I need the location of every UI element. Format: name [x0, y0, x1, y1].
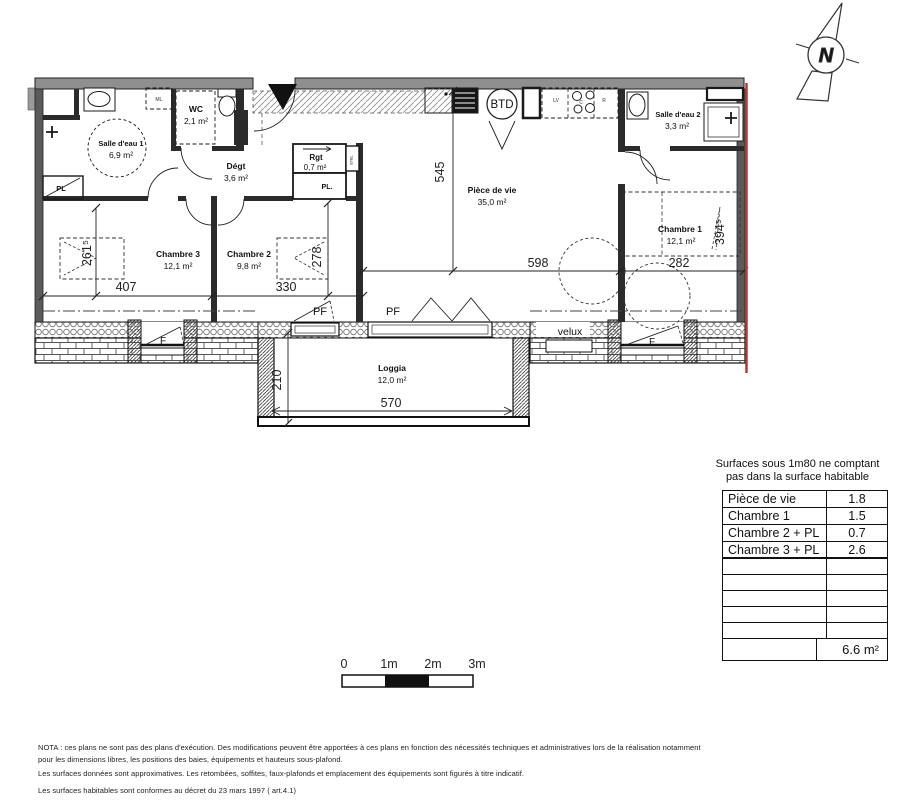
wall-pier — [184, 320, 197, 363]
btd-label: BTD — [491, 99, 514, 111]
ventilation-unit — [707, 88, 743, 100]
cooktop-label: C — [579, 100, 583, 106]
f-label-chambre3: F — [160, 336, 166, 347]
table-row-empty — [723, 591, 887, 607]
scale-bar: 0 1m 2m 3m — [341, 657, 486, 687]
nota-line2: pour les dimensions libres, les position… — [38, 755, 878, 764]
north-arrow-icon: N — [796, 3, 859, 101]
room-area-chambre2: 9,8 m² — [237, 261, 261, 271]
room-label-rgt: Rgt — [309, 153, 323, 162]
etel-label: ETEL — [350, 155, 354, 165]
dim-3945: 394⁵ — [713, 219, 727, 245]
room-label-chambre1: Chambre 1 — [658, 224, 702, 234]
surfaces-table-grid: Pièce de vie 1.8 Chambre 1 1.5 Chambre 2… — [722, 490, 888, 661]
room-area-wc: 2,1 m² — [184, 116, 208, 126]
table-cell-value: 0.7 — [827, 526, 887, 540]
wall-top-left-segment — [35, 78, 253, 89]
room-area-chambre1: 12,1 m² — [667, 236, 696, 246]
surfaces-table-title-line2: pas dans la surface habitable — [705, 471, 890, 484]
burner-icon — [586, 91, 594, 99]
velux-label: velux — [558, 326, 583, 338]
table-row: Chambre 1 1.5 — [723, 508, 887, 525]
table-cell-value: 2.6 — [827, 543, 887, 557]
dim-210: 210 — [270, 370, 284, 391]
floor-plan-sheet: N 0 1m 2m 3m Salle d'eau 1 6,9 m² WC 2,1… — [0, 0, 897, 800]
surfaces-table-title-line1: Surfaces sous 1m80 ne comptant — [705, 458, 890, 471]
wall-pier — [608, 320, 621, 363]
window-sill — [141, 348, 184, 355]
dishwasher-label: LV — [553, 98, 560, 104]
room-label-chambre3: Chambre 3 — [156, 249, 200, 259]
table-row-empty — [723, 575, 887, 591]
room-area-rgt: 0,7 m² — [304, 163, 327, 172]
dim-407: 407 — [116, 280, 137, 294]
kitchen — [425, 88, 618, 149]
pf-label-sejour: PF — [386, 306, 400, 318]
room-label-loggia: Loggia — [378, 363, 406, 373]
room-label-piece-de-vie: Pièce de vie — [468, 185, 517, 195]
entry-low-ceiling-zone — [253, 84, 425, 146]
note-decret: Les surfaces habitables sont conformes a… — [38, 786, 878, 795]
fixture-labels: ML LV C R BTD ETEL PL PL. velux PF PF F … — [56, 97, 655, 348]
pl-label-salle-eau: PL — [56, 184, 66, 193]
scale-tick-2m: 2m — [424, 657, 441, 671]
wall-left — [35, 89, 43, 322]
room-area-loggia: 12,0 m² — [378, 375, 407, 385]
washing-machine-label: ML — [155, 97, 162, 103]
dim-570: 570 — [381, 396, 402, 410]
surfaces-table: Surfaces sous 1m80 ne comptant pas dans … — [705, 458, 890, 661]
window-sill — [621, 348, 684, 355]
turning-circle — [624, 263, 690, 329]
dim-282: 282 — [669, 256, 690, 270]
f-label-chambre1: F — [649, 337, 655, 348]
room-area-piece-de-vie: 35,0 m² — [478, 197, 507, 207]
dim-2615: 261⁵ — [80, 240, 94, 266]
table-cell-label: Pièce de vie — [723, 491, 827, 507]
room-area-chambre3: 12,1 m² — [164, 261, 193, 271]
table-row: Chambre 3 + PL 2.6 — [723, 542, 887, 559]
pf-label-chambre2: PF — [313, 306, 327, 318]
pf-window-chambre2 — [291, 323, 339, 336]
kitchen-sink — [425, 88, 452, 113]
room-area-salle-eau-2: 3,3 m² — [665, 121, 689, 131]
table-row-empty — [723, 559, 887, 575]
room-area-salle-eau-1: 6,9 m² — [109, 150, 133, 160]
dim-598: 598 — [528, 256, 549, 270]
dim-330: 330 — [276, 280, 297, 294]
turning-circle — [88, 119, 146, 177]
table-row-empty — [723, 607, 887, 623]
wall-pier — [684, 320, 697, 363]
room-area-degt: 3,6 m² — [224, 173, 248, 183]
table-cell-label: Chambre 3 + PL — [723, 542, 827, 557]
shower-drain-icon — [46, 126, 58, 138]
room-label-wc: WC — [189, 104, 203, 114]
dim-278: 278 — [310, 247, 324, 268]
room-label-degt: Dégt — [227, 161, 246, 171]
table-total-value: 6.6 m² — [817, 642, 887, 657]
room-label-salle-eau-2: Salle d'eau 2 — [655, 110, 700, 119]
note-surfaces: Les surfaces données sont approximatives… — [38, 769, 878, 778]
door-arcs — [148, 148, 670, 225]
loggia-wall-bottom — [258, 417, 529, 426]
table-row-empty — [723, 623, 887, 639]
table-row: Chambre 2 + PL 0.7 — [723, 525, 887, 542]
loggia-wall-right — [513, 338, 529, 424]
wall-top-right-segment — [295, 78, 744, 89]
room-label-chambre2: Chambre 2 — [227, 249, 271, 259]
kitchen-drainer — [452, 88, 478, 113]
technical-shaft — [523, 88, 540, 118]
wall-pier — [128, 320, 141, 363]
pf-window-sejour — [368, 322, 492, 337]
table-row-total: 6.6 m² — [723, 639, 887, 660]
table-cell-value: 1.5 — [827, 509, 887, 523]
table-row: Pièce de vie 1.8 — [723, 491, 887, 508]
burner-icon — [586, 104, 595, 113]
scale-tick-0: 0 — [341, 657, 348, 671]
table-cell-label: Chambre 1 — [723, 508, 827, 524]
floor-plan-drawing: N 0 1m 2m 3m Salle d'eau 1 6,9 m² WC 2,1… — [0, 0, 897, 800]
scale-tick-3m: 3m — [468, 657, 485, 671]
velux-window — [546, 340, 592, 352]
table-cell-value: 1.8 — [827, 492, 887, 506]
north-label: N — [819, 45, 834, 67]
closet-pl-hall — [293, 173, 346, 199]
dim-545: 545 — [433, 162, 447, 183]
interior-walls — [43, 89, 744, 322]
table-cell-label: Chambre 2 + PL — [723, 525, 827, 541]
burner-icon — [574, 105, 582, 113]
pl-label-hall: PL. — [322, 184, 333, 191]
exterior-wall-bottom-left — [35, 320, 258, 363]
shower — [704, 103, 743, 141]
scale-tick-1m: 1m — [380, 657, 397, 671]
fridge-label: R — [602, 98, 606, 104]
nota-line1: NOTA : ces plans ne sont pas des plans d… — [38, 743, 878, 752]
room-label-salle-eau-1: Salle d'eau 1 — [98, 139, 143, 148]
